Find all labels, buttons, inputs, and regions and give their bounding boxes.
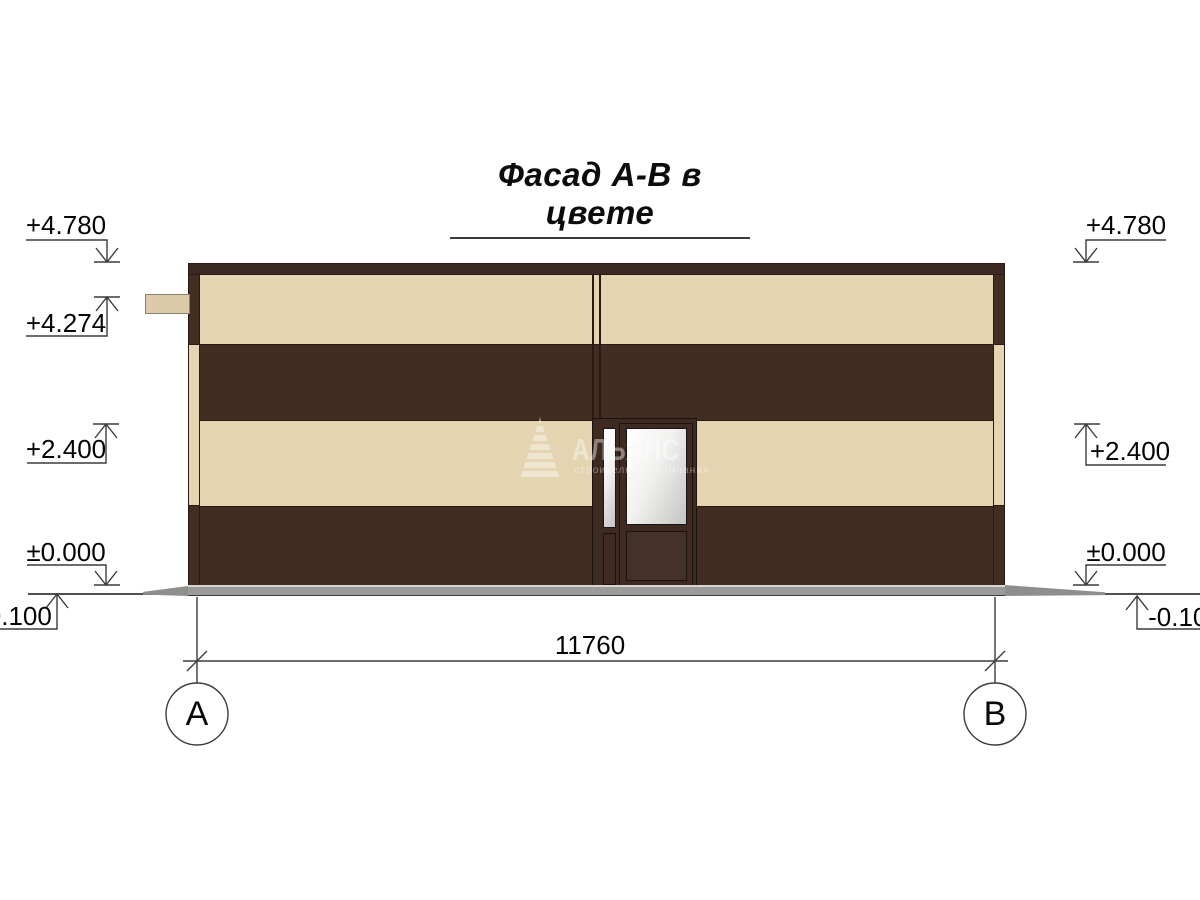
axis-bubble-a: А [166, 683, 228, 745]
elevation-label-left-0000: ±0.000 [24, 537, 108, 568]
blind-area-right [1004, 585, 1105, 596]
watermark-brand: АЛЬЯНС [572, 432, 680, 468]
elevation-label-right-2400: +2.400 [1088, 436, 1172, 467]
door-leaf-panel [626, 531, 687, 581]
facade-drawing-canvas: Фасад А-В в цвете [0, 0, 1200, 900]
blind-area-left [143, 585, 189, 596]
watermark-subtitle: строительная компания [574, 465, 710, 476]
drawing-title: Фасад А-В в цвете [450, 156, 750, 239]
axis-bubble-b: В [964, 683, 1026, 745]
axis-label-b: В [984, 695, 1007, 733]
wall-band-dark-upper [199, 344, 994, 421]
axis-label-a: А [186, 695, 209, 733]
panel-seam-line [599, 274, 601, 419]
elevation-marker-left-0000 [27, 565, 120, 585]
right-corner-strip-dark-top [993, 274, 1005, 345]
dimension-value: 11760 [515, 630, 665, 661]
wall-beam-outlet [145, 294, 190, 314]
elevation-label-left-4780: +4.780 [24, 210, 108, 241]
elevation-marker-left-4780 [26, 240, 120, 262]
right-corner-strip-beige [993, 344, 1005, 506]
right-corner-strip-dark-bottom [993, 505, 1005, 586]
elevation-marker-right-0000 [1073, 565, 1166, 585]
plinth-strip [188, 585, 1005, 596]
pyramid-logo-icon [520, 417, 560, 479]
door-sidelight-panel [603, 533, 616, 585]
elevation-label-left-4274: +4.274 [24, 308, 108, 339]
elevation-label-left-2400: +2.400 [24, 434, 108, 465]
panel-seam-line [592, 274, 594, 419]
watermark: АЛЬЯНС строительная компания [516, 414, 736, 480]
elevation-label-right-0000: ±0.000 [1084, 537, 1168, 568]
elevation-label-right-4780: +4.780 [1084, 210, 1168, 241]
elevation-label-right-m100: -0.100 [1143, 602, 1200, 633]
wall-band-beige-top [199, 274, 994, 345]
elevation-marker-right-4780 [1073, 240, 1166, 262]
elevation-label-left-m100: -0.100 [0, 601, 57, 632]
